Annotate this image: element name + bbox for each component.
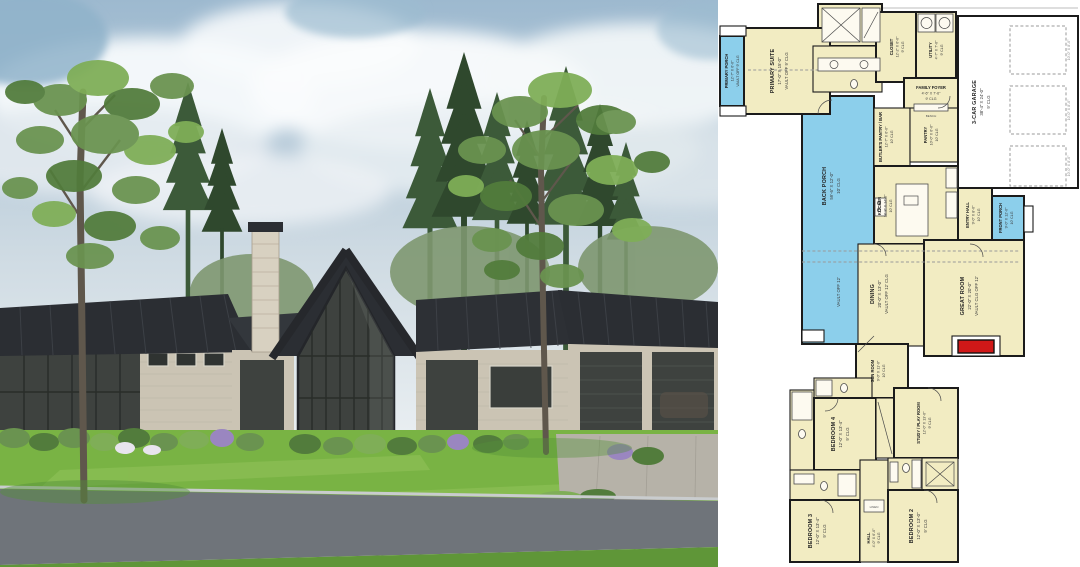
room-ceiling: 10' CLG — [935, 128, 939, 141]
room-ceiling: 9' CLG — [986, 95, 991, 109]
room-dims: 9'-0" X 12'-0" — [1005, 207, 1009, 228]
bench-label: BENCH — [926, 114, 937, 118]
left-wing — [0, 294, 254, 436]
floor-plan-drawing: PRIMARY PORCH 12'-7" X 6'-0" VAULT OFF 9… — [718, 0, 1080, 567]
room-name: FRONT PORCH — [998, 203, 1003, 233]
dryer — [936, 14, 953, 32]
room-dims: 12'-7" X 6'-0" — [885, 126, 889, 147]
shower — [816, 380, 832, 396]
room-dims: 12'-2" X 6'-0" — [896, 36, 900, 57]
kitchen-island — [896, 184, 928, 236]
white-flowers — [143, 445, 161, 455]
tree-shadow — [0, 480, 190, 504]
room-ceiling: 9' CLG — [923, 519, 928, 533]
room-ceiling: VAULT OFF 9' CLG — [736, 55, 740, 86]
room-name: STUDY / PLAY ROOM — [916, 402, 921, 444]
right-wing — [416, 290, 574, 438]
room-dims: 12'-0" X 13'-0" — [916, 512, 921, 540]
tree-shadow — [472, 438, 632, 458]
room-name: 3-CAR GARAGE — [972, 80, 978, 124]
room-ceiling: 10' CLG — [977, 208, 981, 221]
room-ceiling: VAULT OFF 9' CLG — [784, 52, 789, 90]
room-dims: 12'-0" X 13'-0" — [923, 411, 927, 434]
room-dims: 4'-6" X 7'-6" — [922, 92, 941, 96]
room-name: PANTRY — [923, 127, 928, 144]
dining — [858, 244, 924, 346]
room-ceiling: VAULT OFF 12' CLG — [884, 273, 889, 313]
room-dims: 59'-6" X 12'-0" — [829, 172, 834, 200]
white-flowers — [115, 442, 135, 454]
room-ceiling: 9' CLG — [940, 44, 944, 55]
room-ceiling: 10' CLG — [889, 199, 893, 212]
room-dims: 4'-7" X 7'-0" — [935, 40, 939, 59]
room-name: BACK PORCH — [822, 167, 828, 206]
room-name: UTILITY — [928, 42, 933, 58]
vanity — [818, 58, 880, 71]
wall-ovens — [946, 192, 957, 218]
car-silhouette — [660, 392, 708, 418]
room-name: PRIMARY SUITE — [770, 49, 776, 94]
room-ceiling: 10' CLG — [890, 130, 894, 143]
chimney — [248, 222, 283, 352]
room-ceiling: 10' CLG — [836, 178, 841, 194]
room-dims: 12'-0" X 13'-4" — [815, 517, 820, 545]
toilet — [841, 384, 848, 393]
vanity — [890, 462, 898, 482]
room-dims: 4'-0" X 6'-0" — [872, 528, 876, 547]
toilet — [903, 464, 910, 473]
room-name: ENTRY HALL — [965, 202, 970, 228]
garage-wing — [558, 290, 718, 436]
room-dims: 20'-0" X 13'-0" — [877, 280, 882, 308]
room-dims: 22'-0" X 20'-0" — [967, 282, 972, 310]
garage-door-size: 10'-0" X 8'-0" — [1067, 39, 1071, 60]
room-name: SUN ROOM — [870, 359, 875, 382]
left-wing-glass — [0, 352, 140, 434]
room-ceiling: 9' CLG — [901, 41, 905, 52]
shower — [838, 474, 856, 496]
room-ceiling: 9' CLG — [925, 97, 936, 101]
garage-door-size: 10'-0" X 8'-0" — [1067, 155, 1071, 176]
house-plan-split-image: PRIMARY PORCH 12'-7" X 6'-0" VAULT OFF 9… — [0, 0, 1080, 567]
toilet — [799, 430, 806, 439]
room-name: CLOSET — [889, 38, 894, 55]
room-name: BUTLER'S PANTRY / BAR — [878, 112, 883, 162]
room-ceiling: 9' CLG — [928, 417, 932, 428]
room-name: DINING — [870, 284, 876, 304]
room-dims: 10'-0" X 6'-0" — [930, 124, 934, 145]
refrigerator — [946, 168, 957, 188]
room-name: HALL — [866, 532, 871, 543]
exterior-render-scene — [0, 0, 718, 567]
room-name: BEDROOM 3 — [808, 514, 814, 548]
room-name: KITCHEN — [877, 197, 882, 215]
room-ceiling: 9' CLG — [822, 524, 827, 538]
room-dims: 9'-0" X 8'-0" — [972, 205, 976, 224]
linen-label: LINEN — [870, 505, 879, 509]
vault-note: VAULT OFF 12' — [836, 277, 841, 307]
room-ceiling: 10' CLG — [882, 364, 886, 377]
room-name: FAMILY FOYER — [916, 85, 946, 90]
room-dims: 12'-7" X 6'-0" — [731, 60, 735, 81]
room-dims: 9'-0" X 11'-0" — [877, 360, 881, 381]
room-dims: 18'-8" X 14'-6" — [884, 194, 888, 217]
room-name: BEDROOM 2 — [909, 509, 915, 543]
floor-plan: PRIMARY PORCH 12'-7" X 6'-0" VAULT OFF 9… — [718, 0, 1080, 567]
vanity — [794, 474, 814, 484]
washer — [918, 14, 935, 32]
room-ceiling: 9' CLG — [877, 532, 881, 543]
toilet — [821, 482, 828, 491]
room-name: GREAT ROOM — [960, 276, 966, 315]
room-ceiling: VAULT CLG OFF 12' — [974, 276, 979, 316]
fireplace — [952, 336, 1000, 356]
room-name: PRIMARY PORCH — [724, 54, 729, 89]
toilet — [851, 80, 858, 89]
room-ceiling: 9' CLG — [845, 427, 850, 441]
clerestory-windows — [148, 353, 224, 366]
purple-flowers — [447, 434, 469, 450]
tub — [792, 392, 812, 420]
bench-seat — [914, 104, 948, 111]
garage-door-size: 10'-0" X 8'-0" — [1067, 99, 1071, 120]
room-name: BEDROOM 4 — [831, 417, 837, 451]
exterior-render — [0, 0, 718, 567]
room-dims: 17'-0" X 15'-0" — [777, 57, 782, 85]
room-dims: 38'-4" X 24'-0" — [979, 88, 984, 116]
purple-flowers — [210, 429, 234, 447]
room-ceiling: 10' CLG — [1010, 211, 1014, 224]
tub — [912, 460, 921, 488]
room-dims: 12'-0" X 13'-4" — [838, 420, 843, 448]
